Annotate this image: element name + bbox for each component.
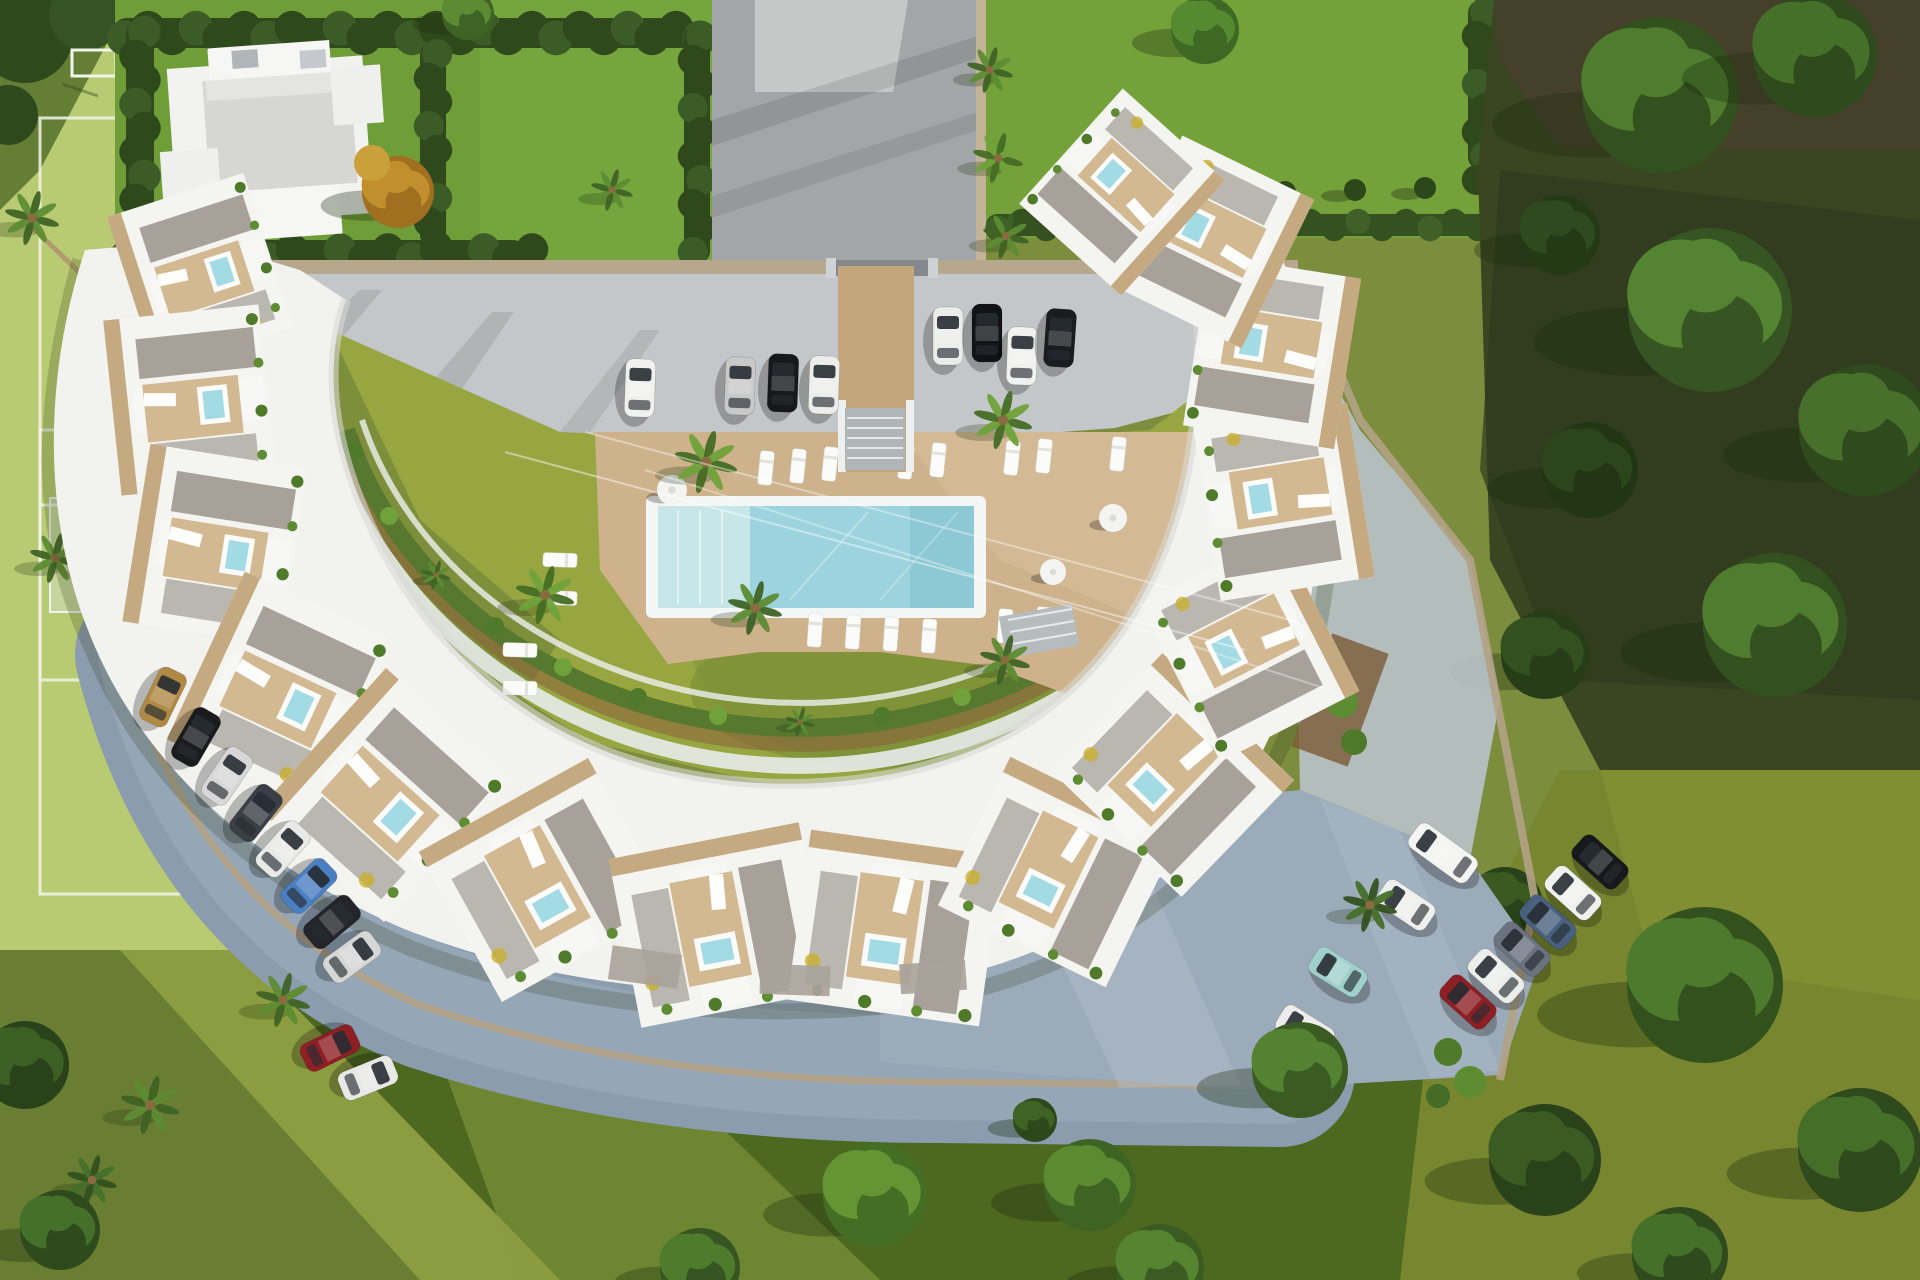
walkway-rail <box>838 400 846 472</box>
walkway-rail <box>906 400 914 472</box>
shrub <box>1414 177 1436 199</box>
planter-shrub <box>873 707 891 725</box>
planter-shrub <box>380 507 398 525</box>
pocket-shrub <box>1434 1038 1462 1066</box>
sun-lounger <box>883 617 899 652</box>
shrub <box>1344 179 1366 201</box>
planter-shrub <box>953 688 971 706</box>
planter-shrub <box>629 688 647 706</box>
sun-lounger <box>845 615 861 650</box>
planter-shrub <box>554 658 572 676</box>
planter-shrub <box>486 617 504 635</box>
sun-lounger <box>807 613 823 648</box>
garden-wall <box>976 0 986 262</box>
gate-post <box>928 258 938 278</box>
pool-shallow-end <box>658 506 750 608</box>
planter-shrub <box>709 707 727 725</box>
villa-skylight <box>231 49 258 69</box>
pocket-shrub <box>1454 1066 1486 1098</box>
sun-lounger <box>543 552 577 567</box>
car-black <box>962 304 1002 372</box>
pocket-shrub <box>1341 729 1367 755</box>
villa-wing <box>330 64 384 125</box>
gravel-roof <box>899 960 967 995</box>
sun-lounger <box>503 642 537 657</box>
villa-skylight <box>299 49 326 69</box>
car-white <box>923 307 963 375</box>
pocket-shrub <box>1426 1084 1450 1108</box>
site-plan-rendering <box>0 0 1920 1280</box>
gate-post <box>826 258 836 278</box>
sun-lounger <box>921 619 937 654</box>
aerial-render-stage: Aerial 3D architectural rendering of a c… <box>0 0 1920 1280</box>
gravel-roof <box>759 964 830 996</box>
autumn-tree <box>354 145 390 181</box>
